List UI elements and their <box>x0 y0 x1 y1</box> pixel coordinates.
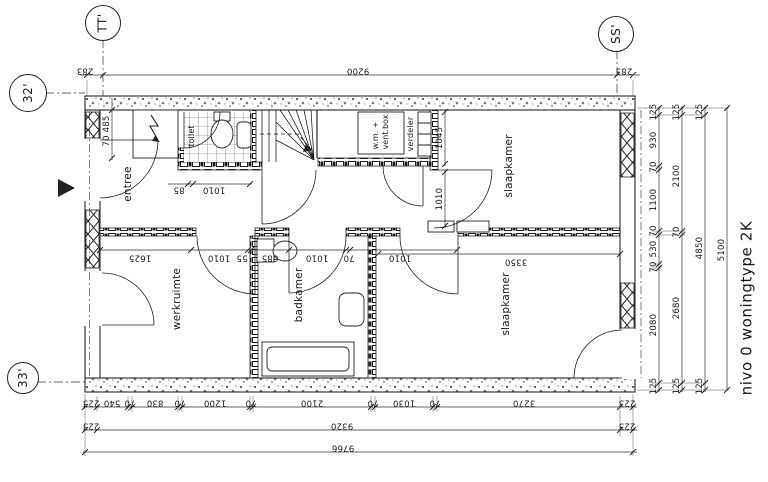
dim-door-top: 1010 <box>436 188 445 210</box>
bedroom-bottom-door <box>400 236 458 294</box>
dim-r3-1: 4850 <box>696 237 705 259</box>
dim-r1-7: 2080 <box>650 314 659 336</box>
dim-b1-5: 1200 <box>204 398 226 407</box>
dim-r1-3: 1100 <box>650 189 659 211</box>
dim-r1-1: 930 <box>650 132 659 149</box>
dim-bad-wall: 70 <box>343 253 354 262</box>
dim-r4-0: 5100 <box>718 239 727 261</box>
axis-marker-33-label: 33' <box>16 368 30 388</box>
dim-r1-0: 125 <box>650 104 659 121</box>
dim-b1-3: 830 <box>147 398 164 407</box>
equipment-label-verdeler: verdeler <box>407 117 415 152</box>
dim-top-2: 283 <box>616 66 633 75</box>
dim-r1-6: 70 <box>650 261 659 272</box>
dim-bad-a: 685 <box>262 253 279 262</box>
niche-door <box>383 166 423 206</box>
dim-b3-0: 9766 <box>332 443 354 452</box>
dim-top-0: 283 <box>77 66 94 75</box>
axis-lines <box>37 39 641 382</box>
dim-werk-c: 55 <box>236 253 247 262</box>
room-label-toilet: toilet <box>188 125 196 147</box>
room-label-werkruimte: werkruimte <box>172 268 183 330</box>
dim-b1-2: 70 <box>124 398 135 407</box>
dim-slaap-w: 3350 <box>505 257 527 266</box>
technical-niche <box>358 112 431 156</box>
dim-b1-10: 70 <box>429 398 440 407</box>
room-label-slaapkamer-bottom: slaapkamer <box>501 272 512 335</box>
dim-r1-2: 70 <box>650 161 659 172</box>
wall-openings <box>84 139 636 379</box>
dim-r2-3: 2680 <box>673 297 682 319</box>
dim-b2-0: 223 <box>83 421 100 430</box>
bathtub-inner <box>267 347 349 371</box>
dim-mk: 70 485 <box>103 116 112 147</box>
dim-hall-a: 85 <box>173 185 184 194</box>
axis-marker-32: 32' <box>9 74 47 112</box>
dim-r3-0: 125 <box>696 104 705 121</box>
dim-r1-5: 530 <box>650 241 659 258</box>
dim-b1-4: 70 <box>174 398 185 407</box>
axis-marker-tt: TT' <box>85 5 121 41</box>
dim-r2-1: 2100 <box>673 165 682 187</box>
dim-closet: 1045 <box>436 127 445 149</box>
dim-b1-11: 3270 <box>513 398 535 407</box>
axis-marker-33: 33' <box>7 362 39 394</box>
washbasin <box>339 293 364 326</box>
werkruimte-door <box>197 236 255 294</box>
equipment-label-wm-ventbox: w.m. + vent.box <box>371 115 391 150</box>
dim-werk-a: 1625 <box>129 253 151 262</box>
exterior-door <box>574 330 622 378</box>
dim-b2-1: 9320 <box>331 421 353 430</box>
hall-fixture <box>457 221 489 232</box>
axis-marker-tt-label: TT' <box>96 13 110 32</box>
axis-marker-ss-label: SS' <box>609 24 623 44</box>
dim-b1-0: 223 <box>83 398 100 407</box>
dim-r3-2: 125 <box>696 378 705 395</box>
dim-b2-2: 223 <box>619 421 636 430</box>
floor-plan-sheet: TT' SS' 32' 33' nivo 0 woningtype 2K ent… <box>0 0 768 482</box>
dim-r1-8: 125 <box>650 378 659 395</box>
dim-b1-9: 1030 <box>393 398 415 407</box>
hand-basin <box>237 122 251 148</box>
meter-cupboard <box>133 110 178 158</box>
axis-marker-32-label: 32' <box>21 83 35 103</box>
hall-door <box>262 170 316 224</box>
dim-hall-b: 1010 <box>203 185 225 194</box>
sheet-title: nivo 0 woningtype 2K <box>740 221 755 396</box>
staircase <box>260 110 314 162</box>
room-label-badkamer: badkamer <box>294 268 305 323</box>
stair-walkline <box>260 134 310 148</box>
dim-b1-1: 540 <box>104 398 121 407</box>
dim-b1-6: 70 <box>245 398 256 407</box>
dim-b1-8: 70 <box>367 398 378 407</box>
dim-r2-4: 125 <box>673 378 682 395</box>
dim-b1-12: 223 <box>619 398 636 407</box>
toilet-bowl <box>211 120 233 148</box>
entrance-arrow-icon <box>58 179 75 197</box>
dim-r2-0: 125 <box>673 104 682 121</box>
axis-marker-ss: SS' <box>598 16 634 52</box>
dim-r2-2: 70 <box>673 226 682 237</box>
werkruimte-side-door <box>102 273 154 325</box>
room-label-slaapkamer-top: slaapkamer <box>504 134 515 197</box>
room-label-entree: entree <box>123 166 134 201</box>
dim-werk-b: 1010 <box>208 253 230 262</box>
dim-bad-c: 1010 <box>389 253 411 262</box>
dim-r1-4: 70 <box>650 225 659 236</box>
dim-bad-b: 1010 <box>306 253 328 262</box>
dim-b1-7: 2100 <box>301 398 323 407</box>
dim-top-1: 9200 <box>347 66 369 75</box>
hall-fixture <box>428 221 454 232</box>
